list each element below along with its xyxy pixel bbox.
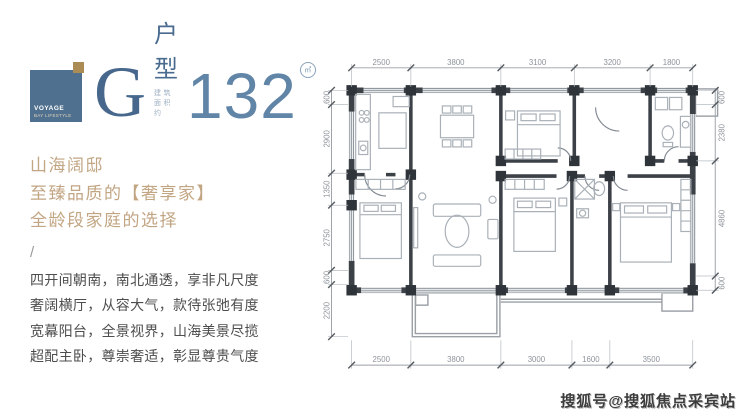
headline-line: 山海阔邸 <box>30 152 315 180</box>
svg-text:600: 600 <box>323 270 332 284</box>
floorplan-furniture <box>356 94 691 266</box>
unit-letter: G <box>94 63 146 122</box>
body-line: 宽幕阳台，全景视界，山海美景尽揽 <box>30 319 315 344</box>
svg-text:2750: 2750 <box>323 228 332 246</box>
floorplan: 2500380031003200180025003800300016003500… <box>309 50 733 377</box>
svg-text:3200: 3200 <box>604 58 622 67</box>
brand-logo-text: VOYAGE BAY LIFESTYLE <box>34 105 72 118</box>
svg-text:600: 600 <box>718 90 727 104</box>
logo-lockup: VOYAGE BAY LIFESTYLE G 户型 建筑面积约 132 ㎡ <box>30 50 315 122</box>
svg-text:2200: 2200 <box>323 301 332 319</box>
body-line: 奢阔横厅，从容大气，款待张弛有度 <box>30 293 315 318</box>
floorplan-columns <box>346 85 698 295</box>
svg-text:600: 600 <box>718 276 727 290</box>
svg-text:3000: 3000 <box>528 355 546 364</box>
body-line: 四开间朝南，南北通透，享非凡尺度 <box>30 268 315 293</box>
floorplan-interior-walls <box>352 93 693 287</box>
svg-text:4860: 4860 <box>718 209 727 227</box>
area-value: 132 <box>187 70 297 122</box>
svg-text:1350: 1350 <box>323 180 332 198</box>
svg-text:3800: 3800 <box>447 355 465 364</box>
svg-text:2500: 2500 <box>373 58 391 67</box>
svg-text:600: 600 <box>323 90 332 104</box>
left-column: VOYAGE BAY LIFESTYLE G 户型 建筑面积约 132 ㎡ 山海… <box>30 50 315 369</box>
brand-name-line2: BAY LIFESTYLE <box>34 113 72 118</box>
svg-text:3800: 3800 <box>447 58 465 67</box>
gold-accent-square <box>73 62 84 73</box>
floorplan-svg: 2500380031003200180025003800300016003500… <box>309 50 733 377</box>
svg-text:1800: 1800 <box>663 58 681 67</box>
svg-text:3100: 3100 <box>529 58 547 67</box>
unit-type-block: 户型 建筑面积约 <box>154 14 181 118</box>
headline-line: 至臻品质的【奢享家】 <box>30 180 315 208</box>
headline: 山海阔邸 至臻品质的【奢享家】 全龄段家庭的选择 <box>30 152 315 235</box>
svg-text:3500: 3500 <box>643 355 661 364</box>
divider-slash: / <box>30 244 315 261</box>
headline-line: 全龄段家庭的选择 <box>30 207 315 235</box>
body-line: 超配主卧，尊崇奢适，彰显尊贵气度 <box>30 344 315 369</box>
svg-text:1600: 1600 <box>582 355 600 364</box>
poster: VOYAGE BAY LIFESTYLE G 户型 建筑面积约 132 ㎡ 山海… <box>0 0 740 412</box>
area-note: 建筑面积约 <box>154 88 181 118</box>
svg-text:2380: 2380 <box>718 123 727 141</box>
brand-name-line1: VOYAGE <box>34 105 72 112</box>
brand-logo: VOYAGE BAY LIFESTYLE <box>30 70 82 122</box>
body-copy: 四开间朝南，南北通透，享非凡尺度 奢阔横厅，从容大气，款待张弛有度 宽幕阳台，全… <box>30 268 315 370</box>
unit-type-label: 户型 <box>154 14 181 84</box>
svg-text:2500: 2500 <box>373 355 391 364</box>
watermark: 搜狐号@搜狐焦点采宾站 <box>560 390 736 411</box>
svg-text:2900: 2900 <box>323 130 332 148</box>
